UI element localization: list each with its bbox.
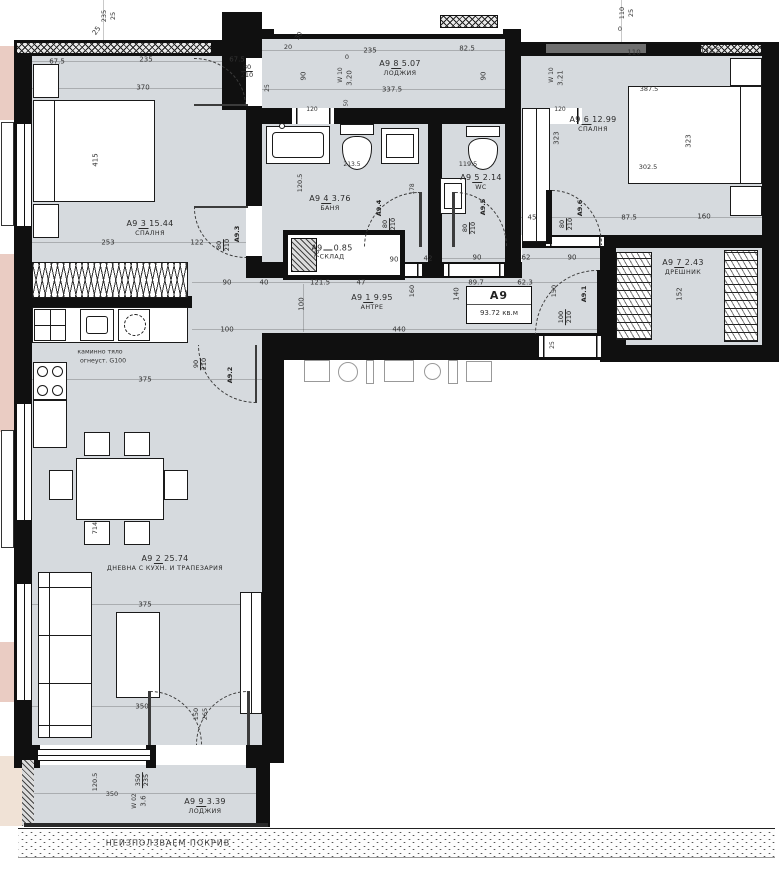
dimension-label: 121.5 — [310, 280, 330, 287]
wardrobe — [32, 262, 188, 298]
door-leaf — [419, 192, 422, 247]
kitchen-cabinet — [33, 400, 67, 448]
window — [38, 749, 150, 761]
adjacent-unit-strip — [0, 254, 14, 346]
nightstand — [33, 204, 59, 238]
dimension-label: 40 — [260, 280, 269, 287]
wall — [505, 29, 521, 262]
adjacent-unit-strip — [0, 346, 14, 432]
dimension-label: 89.7 — [468, 280, 484, 287]
washbasin-counter — [266, 126, 330, 164]
door-leaf — [148, 691, 151, 745]
dimension-label: 122 — [190, 240, 203, 247]
neighbor-fixture — [366, 360, 374, 384]
dimension-label: 150 — [193, 708, 200, 720]
dimension-label: 714 — [92, 522, 99, 534]
sofa — [38, 572, 92, 738]
wall — [256, 745, 270, 827]
dimension-label: 213.5 — [343, 162, 360, 168]
dimension-label: 100 — [220, 327, 233, 334]
dimension-label: 90 — [223, 280, 232, 287]
kitchen-sink — [80, 309, 114, 341]
dimension-line — [192, 282, 602, 283]
dimension-label: 90 — [481, 72, 488, 81]
dimension-label: 90 — [568, 255, 577, 262]
dimension-label: 47 — [357, 280, 366, 287]
dimension-label: 90 — [473, 255, 482, 262]
basin — [272, 132, 324, 158]
dimension-label: 140 — [454, 287, 461, 300]
door-size-label: 100210 — [558, 309, 574, 325]
door-leaf — [255, 345, 257, 403]
dimension-label: 50 — [344, 100, 350, 107]
dimension-label: 142.5 — [700, 48, 720, 55]
stove — [33, 362, 67, 400]
dimension-label: 0 — [618, 26, 622, 33]
dimension-label: 178 — [410, 183, 416, 194]
dimension-label: W 10 — [549, 67, 555, 82]
dimension-label: 375 — [138, 602, 151, 609]
nightstand — [730, 58, 762, 86]
loggia-edge — [24, 823, 268, 827]
window — [16, 404, 32, 520]
window — [16, 124, 32, 226]
neighbor-fixture — [448, 360, 458, 384]
door-leaf — [597, 270, 602, 334]
kitchen-note-line1: каминно тяло — [77, 349, 122, 356]
dimension-label: 235 — [101, 10, 108, 22]
dimension-label: 302.5 — [639, 164, 658, 171]
dimension-label: 350 — [106, 791, 118, 798]
wall — [262, 360, 284, 763]
dimension-label: 120.5 — [92, 773, 99, 792]
pillow-line — [54, 101, 55, 201]
dimension-label: 62.3 — [517, 280, 533, 287]
door-tag: А9.4 — [376, 200, 383, 217]
dimension-label: 152 — [677, 287, 684, 300]
adjacent-unit-strip — [0, 46, 14, 120]
neighbor-window — [1, 122, 14, 226]
faucet-icon — [279, 123, 285, 129]
door-size-label: 350235 — [135, 772, 151, 788]
washing-machine — [118, 309, 150, 341]
wall — [610, 345, 779, 362]
dimension-label: 90 — [390, 257, 399, 264]
dimension-label: 20 — [284, 44, 292, 51]
door-leaf — [546, 190, 552, 244]
dimension-label: 42 — [424, 256, 433, 263]
dimension-label: 3.20 — [347, 70, 354, 86]
dimension-label: 415 — [93, 153, 100, 166]
coffee-table — [116, 612, 160, 698]
door-size-label: 80210 — [462, 222, 478, 234]
door-leaf — [194, 206, 248, 208]
neighbor-fixture — [384, 360, 414, 382]
dimension-label: 323 — [686, 134, 693, 147]
room-label-hall: А919.95АНТРЕ — [351, 293, 393, 311]
room-label-bathroom: А943.76БАНЯ — [309, 194, 351, 212]
door-tag: А9.1 — [581, 286, 588, 303]
door-tag: А9.6 — [577, 200, 584, 217]
dimension-label: 70 — [314, 250, 321, 258]
dimension-label: 100 — [299, 297, 306, 310]
dimension-label: 253 — [101, 240, 114, 247]
wardrobe — [616, 252, 652, 340]
dimension-label: 350 — [135, 704, 148, 711]
chair — [124, 432, 150, 456]
wall-hatch — [440, 15, 498, 28]
dimension-label: 265 — [202, 708, 209, 720]
pillow-line — [740, 87, 741, 183]
dimension-label: 25 — [92, 25, 103, 36]
neighbor-fixture — [338, 362, 358, 382]
dimension-label: 25 — [265, 84, 271, 92]
door-leaf — [194, 104, 248, 106]
dimension-label: 82.5 — [459, 46, 475, 53]
dimension-label: 25 — [110, 12, 117, 20]
dimension-label: 150 — [551, 285, 558, 297]
dimension-label: 62 — [522, 255, 531, 262]
dimension-label: 87.5 — [621, 215, 637, 222]
dimension-label: 110 — [627, 50, 640, 57]
door-size-label: 80210 — [382, 218, 398, 230]
room-label-loggia-top: А985.07ЛОДЖИЯ — [379, 59, 421, 77]
dimension-label: 110 — [619, 7, 626, 19]
floor-plan: А9 93.72 кв.м каминно тяло огнеуст. G100… — [0, 0, 779, 870]
dimension-label: 3.21 — [558, 70, 565, 86]
door-tag: А9.2 — [227, 367, 234, 384]
door-leaf — [452, 192, 455, 247]
dimension-label: 235 — [363, 48, 376, 55]
dimension-label: 0 — [345, 54, 349, 61]
dimension-label: 25 — [550, 341, 556, 349]
door-tag: А9.5 — [480, 199, 487, 216]
window — [16, 584, 32, 700]
dimension-label: 119.5 — [459, 161, 478, 168]
chair — [84, 432, 110, 456]
room-label-loggia-bottom: А993.39ЛОДЖИЯ — [184, 797, 226, 815]
unit-title: А9 — [467, 287, 531, 305]
dimension-label: 90 — [301, 72, 308, 81]
chair — [124, 521, 150, 545]
dimension-label: 323 — [554, 131, 561, 144]
bed — [33, 100, 155, 202]
door-size-label: 90210 — [193, 358, 209, 370]
dimension-label: 120.5 — [297, 174, 304, 193]
dimension-label: 120 — [554, 107, 565, 113]
neighbor-window — [1, 430, 14, 548]
dimension-label: 3.6 — [141, 795, 148, 806]
dimension-label: 160 — [697, 214, 710, 221]
chair — [49, 470, 73, 500]
dimension-line — [32, 793, 256, 794]
dimension-label: W 10 — [338, 67, 344, 82]
dimension-label: 375 — [138, 377, 151, 384]
room-label-bedroom-1: А9315.44СПАЛНЯ — [127, 219, 174, 237]
unit-area: 93.72 кв.м — [467, 305, 531, 321]
room-label-wc: А952.14WC — [460, 173, 502, 191]
room-label-living: А9225.74ДНЕВНА С КУХН. И ТРАПЕЗАРИЯ — [107, 554, 223, 572]
chair — [164, 470, 188, 500]
door-size-label: 80210 — [216, 239, 232, 251]
dimension-label: 337.5 — [382, 87, 402, 94]
wall — [262, 29, 274, 39]
loggia-side-hatch — [22, 760, 34, 826]
dimension-label: 440 — [392, 327, 405, 334]
dimension-label: 120 — [306, 107, 317, 113]
dimension-label: 160 — [409, 285, 416, 297]
door-leaf — [247, 691, 250, 745]
wardrobe — [724, 250, 758, 342]
nightstand — [730, 186, 762, 216]
kitchen-module — [34, 309, 66, 341]
neighbor-fixture — [304, 360, 330, 382]
dimension-label: 387.5 — [640, 86, 659, 93]
sink — [381, 128, 419, 164]
nightstand — [33, 64, 59, 98]
roof-note: НЕИЗПОЛЗВАЕМ ПОКРИВ — [106, 839, 230, 848]
neighbor-fixture — [466, 361, 492, 382]
dimension-label: 370 — [136, 85, 149, 92]
door-threshold-wc — [444, 264, 504, 276]
wall — [762, 42, 779, 362]
wall-hatch — [16, 42, 212, 54]
dimension-label: 235 — [139, 57, 152, 64]
dimension-label: 25 — [628, 9, 635, 17]
dimension-label: W 02 — [132, 793, 138, 808]
neighbor-fixture — [424, 363, 441, 380]
door-size-label: 80210 — [559, 218, 575, 230]
room-label-dressing: А972.43ДРЕШНИК — [662, 258, 704, 276]
wall — [600, 248, 616, 333]
door-tag: А9.3 — [234, 226, 241, 243]
dining-table — [76, 458, 164, 520]
dimension-label: 67.5 — [49, 59, 65, 66]
unit-label-box: А9 93.72 кв.м — [466, 286, 532, 324]
room-label-bedroom-2: А9612.99СПАЛНЯ — [570, 115, 617, 133]
door-size-label: 80210 — [241, 64, 253, 80]
door-opening — [246, 206, 262, 256]
dimension-label: 45 — [528, 215, 537, 222]
adjacent-unit-strip — [0, 642, 14, 702]
kitchen-note-line2: огнеуст. G100 — [80, 358, 126, 365]
